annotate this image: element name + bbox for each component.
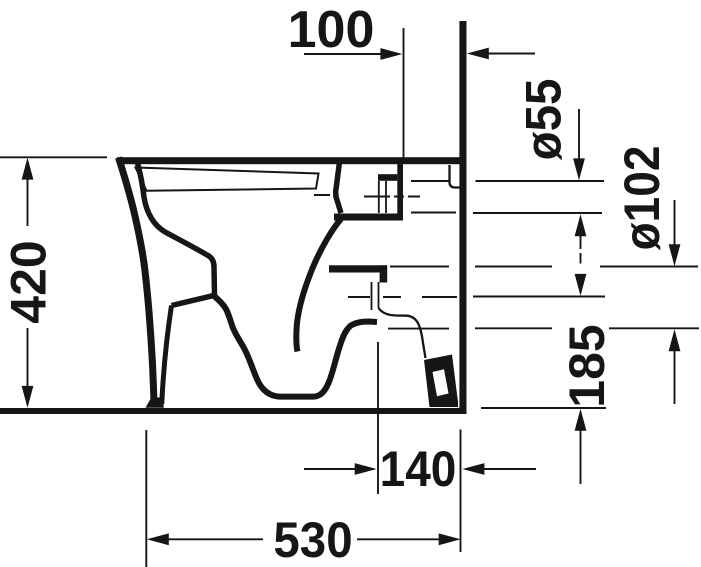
- svg-text:185: 185: [559, 324, 615, 407]
- svg-text:140: 140: [380, 442, 457, 497]
- svg-text:420: 420: [1, 240, 57, 323]
- svg-text:ø55: ø55: [516, 79, 571, 161]
- svg-text:100: 100: [288, 1, 375, 59]
- svg-text:ø102: ø102: [615, 146, 670, 251]
- svg-text:530: 530: [273, 513, 352, 567]
